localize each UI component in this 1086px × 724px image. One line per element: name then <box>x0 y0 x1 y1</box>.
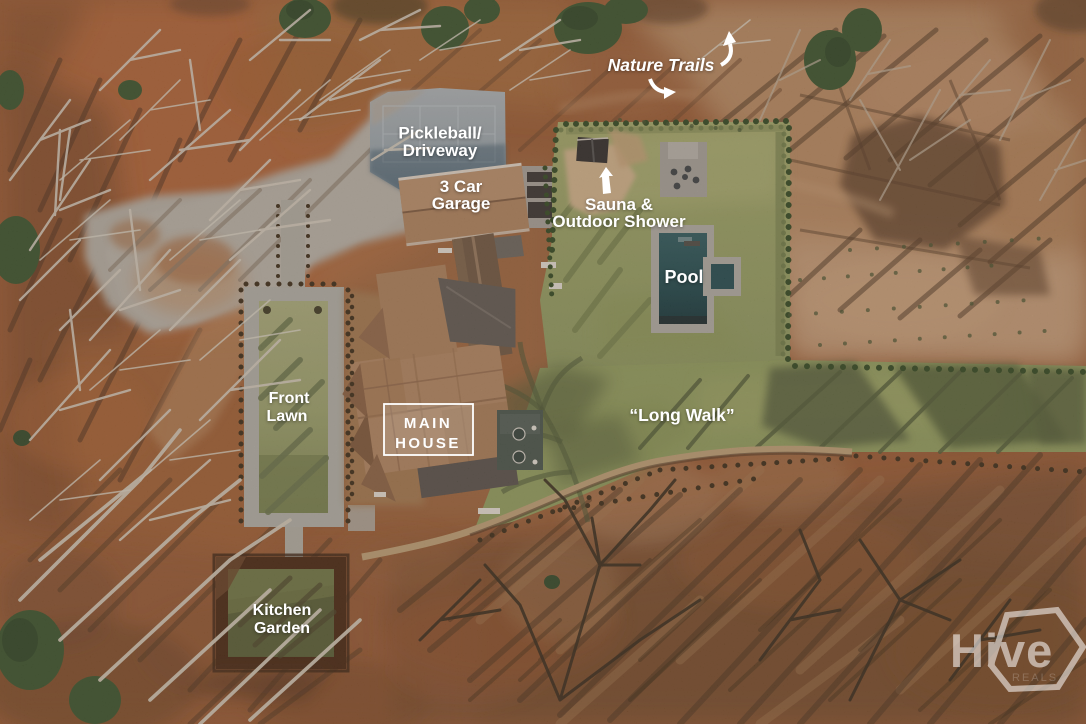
svg-text:Front: Front <box>269 390 311 407</box>
svg-text:Kitchen: Kitchen <box>253 602 312 619</box>
svg-text:Garden: Garden <box>254 620 310 637</box>
svg-text:“Long Walk”: “Long Walk” <box>629 405 734 425</box>
svg-text:Pool: Pool <box>665 267 704 287</box>
svg-text:Pickleball/: Pickleball/ <box>398 124 481 143</box>
svg-text:Hive: Hive <box>950 624 1053 677</box>
svg-text:REALS: REALS <box>1012 672 1058 684</box>
svg-text:HOUSE: HOUSE <box>395 435 461 452</box>
svg-text:Nature Trails: Nature Trails <box>608 55 715 75</box>
svg-text:MAIN: MAIN <box>404 415 452 432</box>
svg-text:Outdoor Shower: Outdoor Shower <box>552 212 686 231</box>
svg-text:Lawn: Lawn <box>267 408 308 425</box>
svg-text:Driveway: Driveway <box>403 141 478 160</box>
svg-text:Garage: Garage <box>432 194 491 213</box>
